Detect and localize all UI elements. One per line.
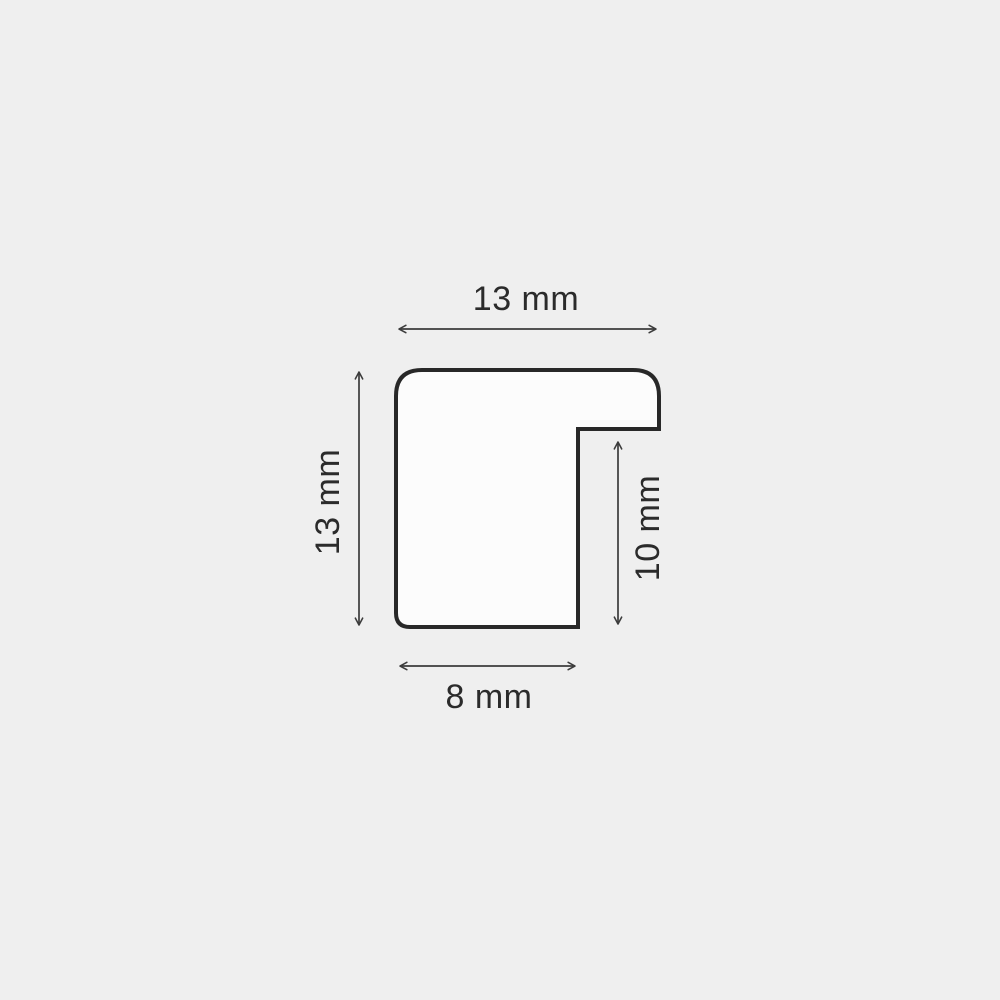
dimension-label-left-height: 13 mm [310, 392, 346, 612]
dimension-label-top-width: 13 mm [416, 281, 636, 317]
frame-profile-outline [396, 370, 659, 627]
profile-drawing [0, 0, 1000, 1000]
dimension-label-rabbet-depth: 10 mm [630, 418, 666, 638]
dimension-label-bottom-width: 8 mm [379, 679, 599, 715]
diagram-canvas: 13 mm 13 mm 10 mm 8 mm [0, 0, 1000, 1000]
